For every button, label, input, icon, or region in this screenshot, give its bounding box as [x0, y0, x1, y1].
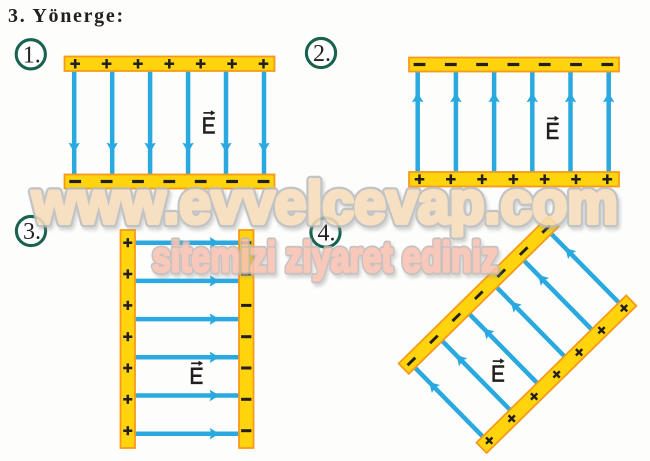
svg-text:sitemizi ziyaret ediniz: sitemizi ziyaret ediniz	[152, 234, 498, 282]
svg-text:www.evvelcevap.com: www.evvelcevap.com	[31, 170, 618, 236]
